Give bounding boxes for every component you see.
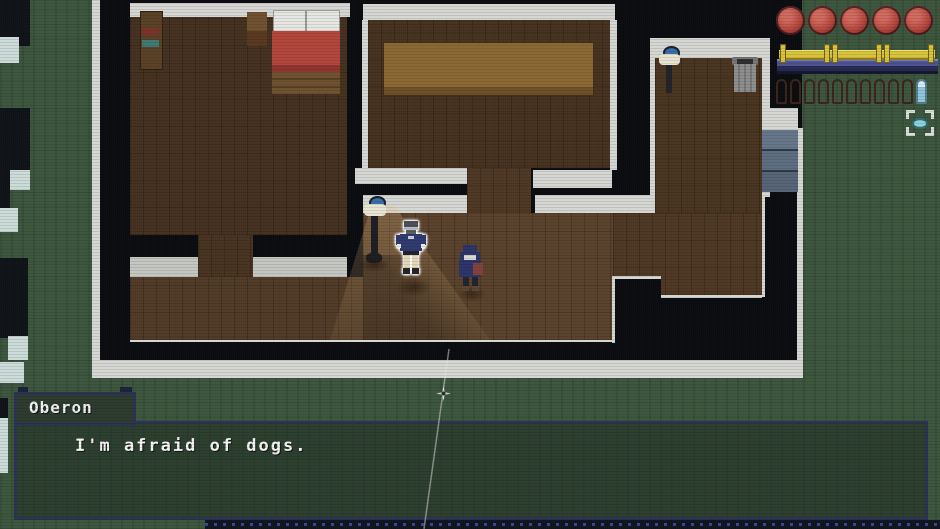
bed-pillow (273, 10, 306, 33)
speaker-name: Oberon (29, 398, 93, 417)
ammo-empty-icon (888, 79, 899, 104)
hall-lamp-shade (364, 204, 386, 216)
room-lamp-pole (666, 65, 672, 93)
dialogue-text: I'm afraid of dogs. (75, 436, 307, 456)
bracket-corner-icon (925, 110, 934, 119)
ammo-empty-icon (776, 79, 787, 104)
npc-shoe-right (472, 286, 479, 291)
bookshelf-teal-row (142, 40, 159, 47)
edge-building (0, 174, 10, 210)
edge-building-wall (8, 336, 28, 360)
long-table (383, 42, 594, 96)
namebox-tick (120, 387, 132, 392)
fence-segment-icon (831, 42, 883, 64)
edge-building (0, 258, 28, 338)
health-orbs (776, 6, 933, 35)
fence-post (780, 44, 786, 63)
edge-building-wall (0, 208, 18, 232)
player-leg-left (404, 255, 410, 268)
bracket-corner-icon (925, 127, 934, 136)
edge-building-wall (0, 362, 24, 383)
player-shoe-left (403, 268, 410, 274)
game-viewport[interactable]: I'm afraid of dogs. Oberon (0, 0, 940, 529)
fence-post (928, 44, 934, 63)
screen-bottom-band (205, 520, 940, 529)
midroom-wall-right (610, 20, 617, 170)
edge-building (0, 108, 30, 174)
hall-left-floor (130, 277, 363, 340)
bedroom-door-floor (198, 235, 253, 277)
fence-segment-icon (883, 42, 935, 64)
npc-leg-left (463, 277, 469, 286)
edge-building-wall (10, 170, 30, 190)
corridor-floor (467, 168, 531, 213)
edge-building-wall (0, 37, 19, 63)
lamp-shadow (358, 258, 390, 272)
ammo-empty-icon (818, 79, 829, 104)
corridor-wall-right-face (535, 195, 658, 213)
midroom-wall-top (363, 4, 615, 20)
player-shoe-right (412, 268, 419, 274)
bedroom-wall-face-left (130, 257, 198, 277)
bracket-corner-icon (906, 127, 915, 136)
bed-pillow (306, 10, 340, 33)
target-gem-icon (912, 118, 928, 129)
npc-shoe-left (462, 286, 469, 291)
outer-wall-left (92, 0, 100, 378)
ammo-empty-icon (902, 79, 913, 104)
bed-footboard (272, 72, 340, 94)
health-orb-icon (872, 6, 901, 35)
player-chest-mark (408, 236, 414, 239)
stairs-cap-wall (762, 108, 798, 130)
outer-wall-bottom (92, 360, 803, 378)
fence-segment-icon (779, 42, 831, 64)
edge-building-wall (0, 418, 8, 473)
dialogue-box[interactable]: I'm afraid of dogs. (14, 421, 928, 520)
corridor-wall-left-top (355, 168, 467, 184)
player-leg-right (412, 255, 418, 268)
health-orb-icon (776, 6, 805, 35)
bracket-corner-icon (906, 110, 915, 119)
player-shadow (396, 277, 432, 297)
hall-lamp-pole (371, 216, 378, 256)
fence-post (884, 44, 890, 63)
health-orb-icon (808, 6, 837, 35)
trash-can (734, 64, 756, 92)
ammo-filled-icon (916, 79, 927, 104)
ammo-empty-icon (846, 79, 857, 104)
stairs (762, 130, 798, 192)
ammo-empty-icon (790, 79, 801, 104)
bookshelf-red-row (142, 28, 159, 35)
ammo-empty-icon (860, 79, 871, 104)
ammo-empty-icon (874, 79, 885, 104)
player-hand-left (397, 244, 401, 248)
fence-post (824, 44, 830, 63)
corridor-wall-right-top (533, 170, 612, 188)
player-hand-right (421, 244, 425, 248)
focus-brackets-icon (906, 110, 934, 136)
namebox-tick (18, 387, 28, 392)
edge-building (0, 398, 8, 418)
fence-post (832, 44, 838, 63)
fence-bar (779, 42, 935, 64)
ammo-empty-icon (804, 79, 815, 104)
inner-wall-block (612, 276, 661, 343)
room-lamp-shade (659, 54, 680, 65)
speaker-name-box: Oberon (14, 392, 136, 426)
npc-leg-right (472, 277, 478, 286)
ammo-empty-icon (832, 79, 843, 104)
fence-post (876, 44, 882, 63)
bedroom-wall-face-right (253, 257, 347, 277)
player-character[interactable] (395, 220, 427, 278)
aim-cursor-icon (436, 386, 451, 401)
health-orb-icon (904, 6, 933, 35)
health-orb-icon (840, 6, 869, 35)
ammo-slots (776, 79, 927, 104)
npc-hooded[interactable] (455, 245, 485, 292)
nightstand (247, 12, 267, 46)
npc-satchel (473, 263, 483, 275)
bed-blanket (272, 31, 340, 72)
